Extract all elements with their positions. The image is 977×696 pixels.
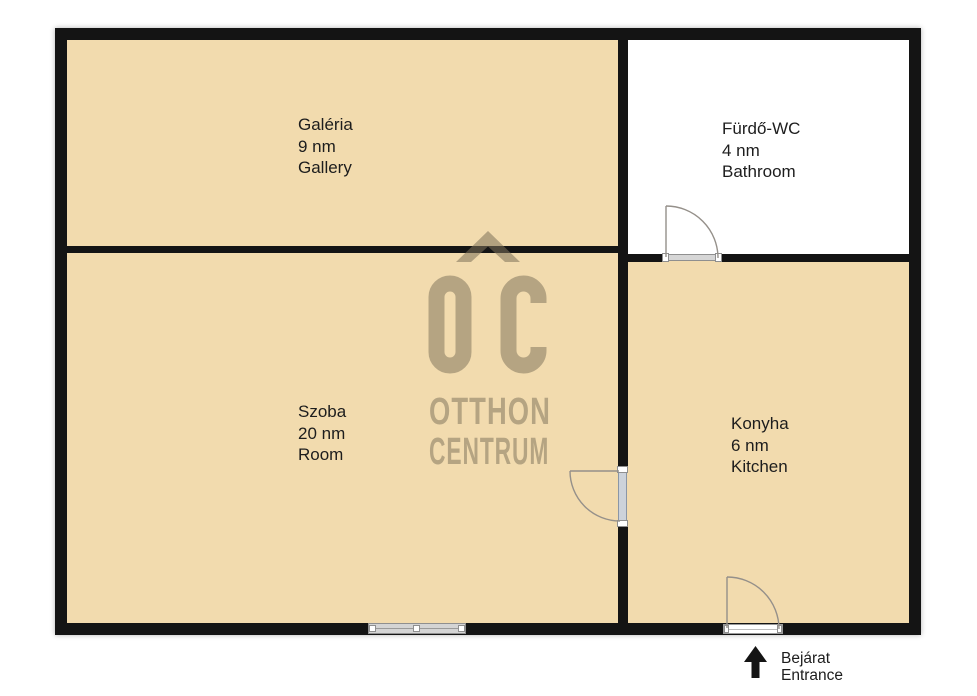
entrance-label-en: Entrance	[781, 667, 843, 684]
room-door-threshold	[617, 466, 628, 527]
window	[368, 623, 466, 634]
door-jamb	[617, 520, 628, 527]
room-name-local: Fürdő-WC	[722, 118, 800, 140]
room-area: 9 nm	[298, 136, 353, 158]
watermark-brand-line1: OTTHON	[429, 393, 551, 431]
entrance-arrow-icon	[744, 646, 767, 678]
window-post	[369, 625, 376, 632]
wall-bathroom-kitchen-right	[719, 254, 909, 262]
wall-bathroom-kitchen-left	[628, 254, 664, 262]
room-name-en: Room	[298, 444, 346, 466]
room-name-en: Kitchen	[731, 456, 789, 478]
door-jamb	[777, 625, 782, 633]
room-area: 6 nm	[731, 435, 789, 457]
threshold-bar	[668, 254, 716, 261]
entrance-label-local: Bejárat	[781, 650, 843, 667]
room-area: 20 nm	[298, 423, 346, 445]
room-name-local: Konyha	[731, 413, 789, 435]
entrance-label: Bejárat Entrance	[781, 650, 843, 684]
room-name-en: Gallery	[298, 157, 353, 179]
wall-gallery-room	[67, 246, 618, 253]
bathroom-door-threshold	[662, 253, 722, 262]
window-post	[413, 625, 420, 632]
entrance-threshold	[723, 624, 783, 634]
window-post	[458, 625, 465, 632]
door-jamb	[715, 253, 722, 262]
threshold-bar	[618, 472, 627, 521]
door-jamb	[617, 466, 628, 473]
watermark-brand-line2: CENTRUM	[429, 433, 549, 471]
room-label-room: Szoba 20 nm Room	[298, 401, 346, 466]
door-jamb	[662, 253, 669, 262]
room-name-local: Szoba	[298, 401, 346, 423]
floor-plan: OTTHON CENTRUM Galéria 9 nm Gallery Fürd…	[0, 0, 977, 696]
room-label-bathroom: Fürdő-WC 4 nm Bathroom	[722, 118, 800, 183]
room-label-gallery: Galéria 9 nm Gallery	[298, 114, 353, 179]
room-name-en: Bathroom	[722, 161, 800, 183]
room-label-kitchen: Konyha 6 nm Kitchen	[731, 413, 789, 478]
room-name-local: Galéria	[298, 114, 353, 136]
room-area: 4 nm	[722, 140, 800, 162]
wall-divider-vertical-lower	[618, 523, 628, 623]
wall-divider-vertical-upper	[618, 40, 628, 471]
threshold-bar	[724, 629, 782, 630]
door-jamb	[724, 625, 729, 633]
